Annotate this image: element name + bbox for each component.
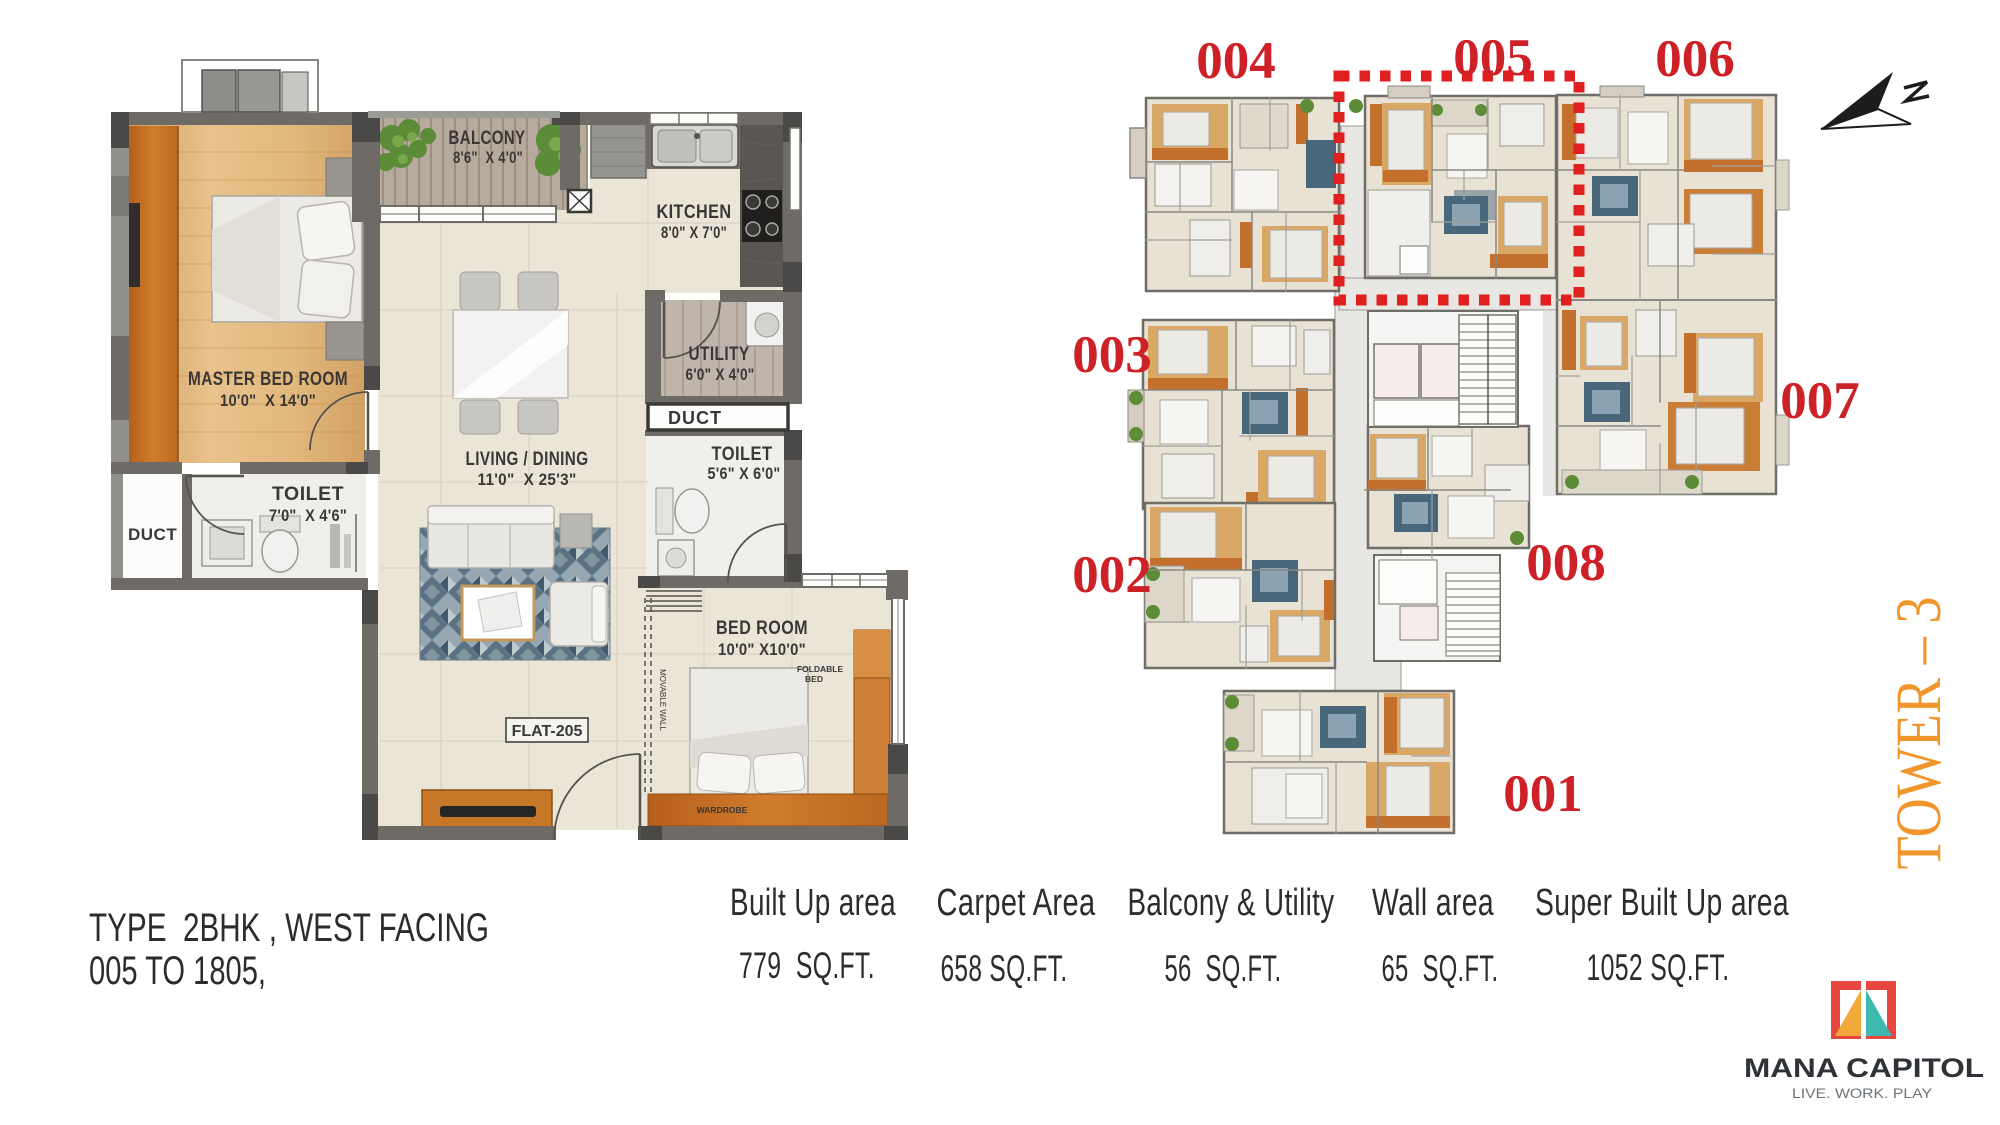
svg-text:BALCONY: BALCONY <box>449 128 526 149</box>
svg-text:WARDROBE: WARDROBE <box>697 805 748 815</box>
svg-text:BED: BED <box>805 674 823 684</box>
svg-text:005: 005 <box>1453 29 1533 87</box>
svg-text:Balcony & Utility: Balcony & Utility <box>1128 882 1335 924</box>
svg-text:Wall area: Wall area <box>1372 882 1494 924</box>
svg-text:MOVABLE WALL: MOVABLE WALL <box>658 669 667 731</box>
svg-text:FOLDABLE: FOLDABLE <box>797 664 844 674</box>
svg-text:DUCT: DUCT <box>668 408 722 428</box>
svg-text:658 SQ.FT.: 658 SQ.FT. <box>941 948 1068 989</box>
svg-text:10'0" X 14'0": 10'0" X 14'0" <box>220 392 316 410</box>
svg-text:DUCT: DUCT <box>128 525 177 544</box>
svg-text:007: 007 <box>1780 372 1860 430</box>
svg-text:003: 003 <box>1072 326 1152 384</box>
svg-text:5'6" X 6'0": 5'6" X 6'0" <box>708 465 781 483</box>
svg-text:TOWER – 3: TOWER – 3 <box>1883 597 1955 870</box>
svg-text:10'0" X10'0": 10'0" X10'0" <box>718 641 806 659</box>
svg-text:004: 004 <box>1196 32 1276 90</box>
svg-text:Built Up area: Built Up area <box>730 882 896 924</box>
svg-text:LIVING / DINING: LIVING / DINING <box>466 449 589 470</box>
svg-text:TYPE 2BHK , WEST FACING: TYPE 2BHK , WEST FACING <box>89 906 489 950</box>
svg-text:Carpet Area: Carpet Area <box>937 882 1096 924</box>
svg-text:008: 008 <box>1526 534 1606 592</box>
svg-text:UTILITY: UTILITY <box>689 344 750 365</box>
svg-text:56 SQ.FT.: 56 SQ.FT. <box>1165 948 1282 989</box>
svg-text:779 SQ.FT.: 779 SQ.FT. <box>739 945 875 986</box>
svg-text:006: 006 <box>1655 30 1735 88</box>
svg-text:1052 SQ.FT.: 1052 SQ.FT. <box>1587 947 1730 988</box>
svg-text:BED ROOM: BED ROOM <box>716 618 808 639</box>
svg-text:8'6" X 4'0": 8'6" X 4'0" <box>453 149 523 167</box>
svg-text:LIVE. WORK. PLAY: LIVE. WORK. PLAY <box>1792 1086 1932 1101</box>
svg-text:FLAT-205: FLAT-205 <box>512 723 583 740</box>
svg-text:MASTER BED ROOM: MASTER BED ROOM <box>188 369 348 390</box>
svg-text:65 SQ.FT.: 65 SQ.FT. <box>1382 948 1499 989</box>
svg-text:TOILET: TOILET <box>712 444 773 465</box>
svg-text:005 TO 1805,: 005 TO 1805, <box>89 949 266 993</box>
svg-text:MANA CAPITOL: MANA CAPITOL <box>1744 1053 1984 1083</box>
svg-text:TOILET: TOILET <box>272 484 344 505</box>
svg-text:7'0" X 4'6": 7'0" X 4'6" <box>269 507 347 525</box>
svg-text:6'0" X 4'0": 6'0" X 4'0" <box>686 366 755 384</box>
svg-text:11'0" X 25'3": 11'0" X 25'3" <box>478 471 577 489</box>
svg-text:KITCHEN: KITCHEN <box>657 202 732 223</box>
svg-text:001: 001 <box>1503 765 1583 823</box>
svg-text:Super Built Up area: Super Built Up area <box>1535 882 1789 924</box>
svg-text:8'0" X 7'0": 8'0" X 7'0" <box>661 224 727 242</box>
svg-text:002: 002 <box>1072 546 1152 604</box>
